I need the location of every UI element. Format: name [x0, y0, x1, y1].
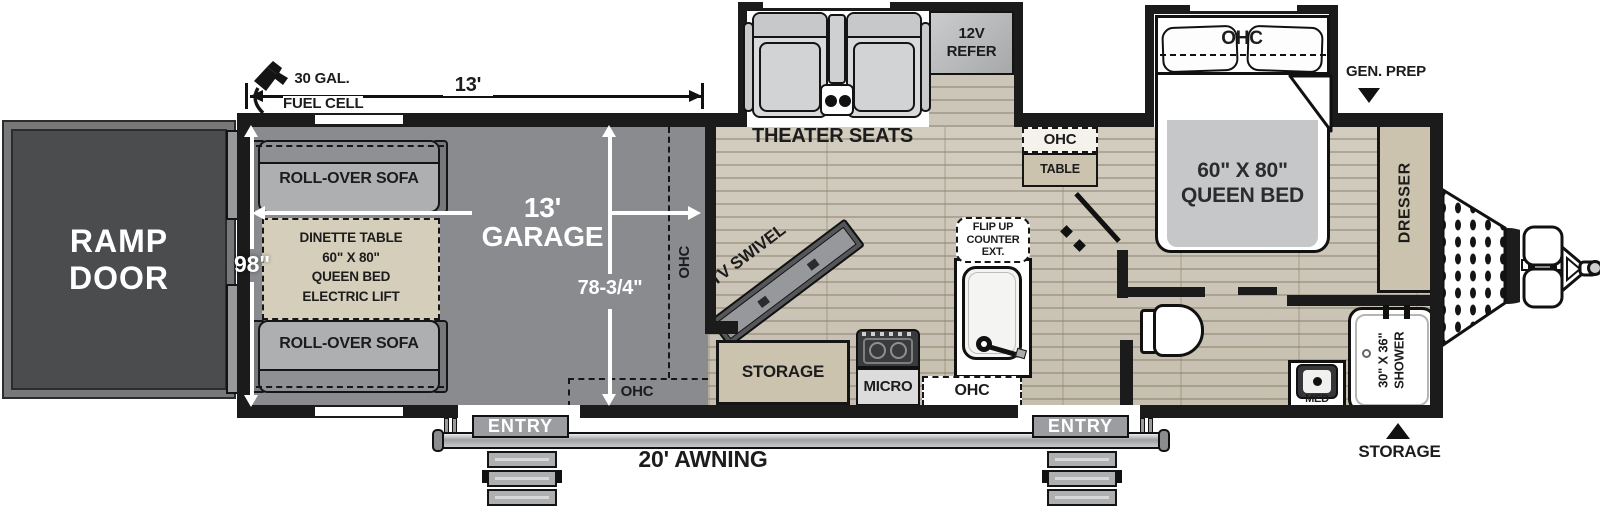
- theater-slideout-border-right: [1014, 2, 1023, 127]
- wall-top-right: [1338, 113, 1443, 127]
- flip-up-line2: COUNTER: [967, 234, 1020, 246]
- rv-floorplan: RAMP DOOR 13' 30 GAL. FUEL CELL: [0, 0, 1600, 516]
- fuel-pump-icon: [242, 60, 290, 114]
- entry-right: ENTRY: [1032, 415, 1129, 438]
- dinette-line4: ELECTRIC LIFT: [302, 289, 399, 304]
- med-label: MED: [1288, 393, 1346, 405]
- ohc-cabinet-label: OHC: [1044, 132, 1077, 149]
- dim-98-seg-top: [250, 132, 254, 249]
- dim-98-label: 98": [224, 252, 280, 277]
- dim-garage13-seg-right: [612, 211, 690, 215]
- dim-78-arrow-down: [602, 394, 616, 406]
- dinette-line2: 60" X 80": [322, 250, 380, 265]
- theater-slideout-wood: [929, 75, 1014, 127]
- table-cabinet: TABLE: [1022, 153, 1098, 187]
- shower-label-wrap: 30" X 36" SHOWER: [1348, 307, 1436, 413]
- dinette-label: DINETTE TABLE 60" X 80" QUEEN BED ELECTR…: [262, 228, 440, 306]
- storage-mid-label: STORAGE: [742, 363, 824, 382]
- step-lug: [1042, 470, 1048, 483]
- cupholder-icon: [839, 95, 851, 107]
- storage-arrow: [1386, 423, 1410, 439]
- shower-line1: 30" X 36": [1376, 332, 1391, 387]
- kitchen-ohc-label: OHC: [922, 382, 1022, 400]
- garage-ohc-bottom-label: OHC: [568, 384, 706, 401]
- wall-top-mid: [1023, 113, 1145, 127]
- sofa-bottom-dashed-line: [256, 386, 444, 388]
- queen-bed-label: 60" X 80" QUEEN BED: [1162, 158, 1323, 208]
- dim-98-arrow-up: [244, 125, 258, 137]
- tongue-frame: [1443, 190, 1505, 345]
- entry-left: ENTRY: [472, 415, 569, 438]
- ramp-door: RAMP DOOR: [2, 120, 236, 399]
- micro-label: MICRO: [864, 379, 913, 396]
- shower-line2: SHOWER: [1392, 331, 1407, 388]
- bed-slideout-border-left: [1145, 5, 1154, 127]
- steps-left: [487, 449, 557, 506]
- dresser-label: DRESSER: [1396, 163, 1414, 244]
- blanket-fold: [1280, 70, 1338, 140]
- bed-slideout-window: [1190, 5, 1297, 11]
- hitch-ball: [1589, 262, 1600, 275]
- dim-13ft-label: 13': [443, 74, 493, 96]
- roll-over-sofa-bottom-label: ROLL-OVER SOFA: [258, 335, 440, 353]
- dim-arrow-right: [689, 90, 702, 102]
- stove: [856, 329, 920, 368]
- storage-cabinet-mid: STORAGE: [716, 340, 850, 405]
- awning-endcap-left: [432, 429, 444, 452]
- propane-tank: [1524, 269, 1562, 307]
- dim-98-arrow-down: [244, 395, 258, 407]
- fuel-cell-label-line2: FUEL CELL: [283, 96, 363, 113]
- propane-tank: [1524, 227, 1562, 265]
- flip-up-counter: FLIP UP COUNTER EXT.: [956, 217, 1030, 263]
- ramp-door-label-line1: RAMP: [70, 223, 168, 259]
- dim-garage13-arrow-right: [688, 206, 701, 220]
- wall-top-left: [237, 113, 738, 127]
- step-lug: [482, 470, 488, 483]
- steps-right: [1047, 449, 1117, 506]
- window-bottom: [315, 407, 403, 416]
- theater-slideout-window: [763, 2, 890, 8]
- microwave: MICRO: [856, 368, 920, 406]
- dim-garage13-seg-left: [264, 211, 472, 215]
- dim-garage13-arrow-left: [252, 206, 265, 220]
- theater-seats-label: THEATER SEATS: [745, 125, 920, 147]
- wall-bath-v2: [1120, 340, 1133, 413]
- sofa-top-dashed-line: [256, 145, 444, 147]
- theater-seat-right: [846, 12, 922, 118]
- queen-bed-line2: QUEEN BED: [1181, 184, 1304, 207]
- wall-garage-divider: [705, 127, 716, 333]
- ramp-door-label-line2: DOOR: [69, 260, 169, 296]
- flip-up-line1: FLIP UP: [973, 221, 1014, 233]
- garage-ohc-side-label: OHC: [677, 246, 694, 279]
- garage-label-line1: 13': [524, 192, 561, 223]
- dim-78-label: 78-3/4": [556, 277, 664, 299]
- wall-bath-h1: [1123, 287, 1205, 297]
- wall-garage-corner: [705, 321, 738, 334]
- refer-label-line1: 12V: [958, 25, 984, 42]
- entry-right-label: ENTRY: [1048, 417, 1113, 437]
- roll-over-sofa-bottom: [258, 320, 440, 393]
- dresser: DRESSER: [1377, 113, 1433, 293]
- step-lug: [1116, 470, 1122, 483]
- roll-over-sofa-top-label: ROLL-OVER SOFA: [258, 170, 440, 188]
- garage-label: 13' GARAGE: [470, 193, 615, 252]
- dinette-line3: QUEEN BED: [312, 269, 390, 284]
- awning-label: 20' AWNING: [608, 447, 798, 472]
- refer-label-line2: REFER: [947, 43, 997, 60]
- bed-ohc-dashed: [1160, 54, 1326, 56]
- flip-up-line3: EXT.: [982, 246, 1004, 258]
- queen-bed-line1: 60" X 80": [1197, 159, 1288, 182]
- dim-78-seg-top: [608, 132, 612, 274]
- trailer-tongue: [1438, 150, 1600, 400]
- theater-cupholder-tray: [820, 84, 854, 116]
- fuel-cell-label-line1: 30 GAL.: [290, 71, 354, 88]
- dim-78-arrow-up: [602, 125, 616, 137]
- step-lug: [556, 470, 562, 483]
- wall-bath-h3: [1287, 295, 1443, 306]
- ohc-cabinet: OHC: [1022, 127, 1098, 153]
- awning-endcap-right: [1158, 429, 1170, 452]
- bed-ohc-label: OHC: [1192, 29, 1292, 50]
- dim-98-seg-bottom: [250, 282, 254, 395]
- storage-right-label: STORAGE: [1352, 443, 1447, 462]
- window-top: [315, 115, 403, 124]
- toilet-bowl: [1153, 304, 1204, 357]
- dinette-line1: DINETTE TABLE: [300, 230, 403, 245]
- garage-ohc-side: OHC: [670, 238, 700, 286]
- wall-bottom: [237, 405, 1443, 418]
- gen-prep-label: GEN. PREP: [1330, 64, 1442, 81]
- garage-label-line2: GARAGE: [482, 221, 604, 252]
- refrigerator-12v: 12V REFER: [929, 11, 1014, 75]
- theater-seat-left: [752, 12, 828, 118]
- entry-left-label: ENTRY: [488, 417, 553, 437]
- gen-prep-arrow: [1358, 88, 1380, 103]
- cupholder-icon: [825, 95, 837, 107]
- theater-console: [828, 14, 846, 84]
- wall-bath-h2: [1238, 287, 1277, 295]
- table-cabinet-label: TABLE: [1040, 163, 1080, 177]
- dim-78-seg-bottom: [608, 309, 612, 396]
